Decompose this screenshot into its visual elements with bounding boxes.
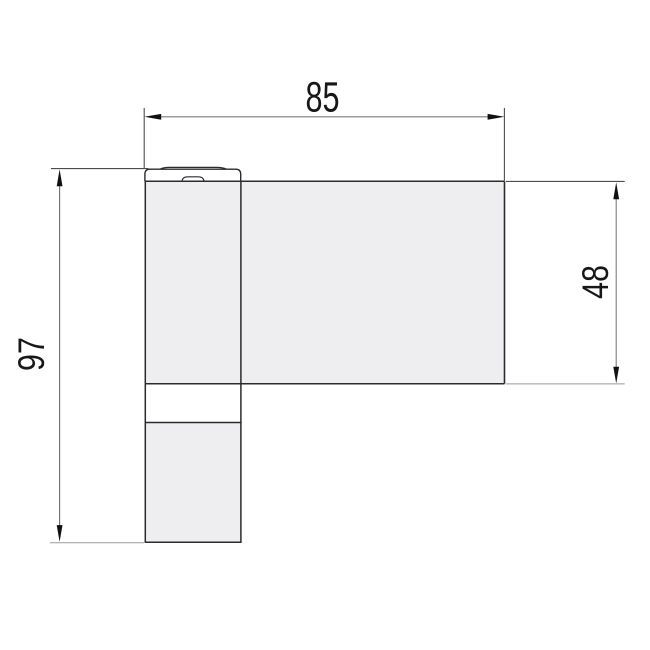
svg-text:85: 85 — [305, 74, 339, 121]
svg-text:97: 97 — [11, 337, 53, 371]
svg-text:48: 48 — [575, 265, 617, 299]
